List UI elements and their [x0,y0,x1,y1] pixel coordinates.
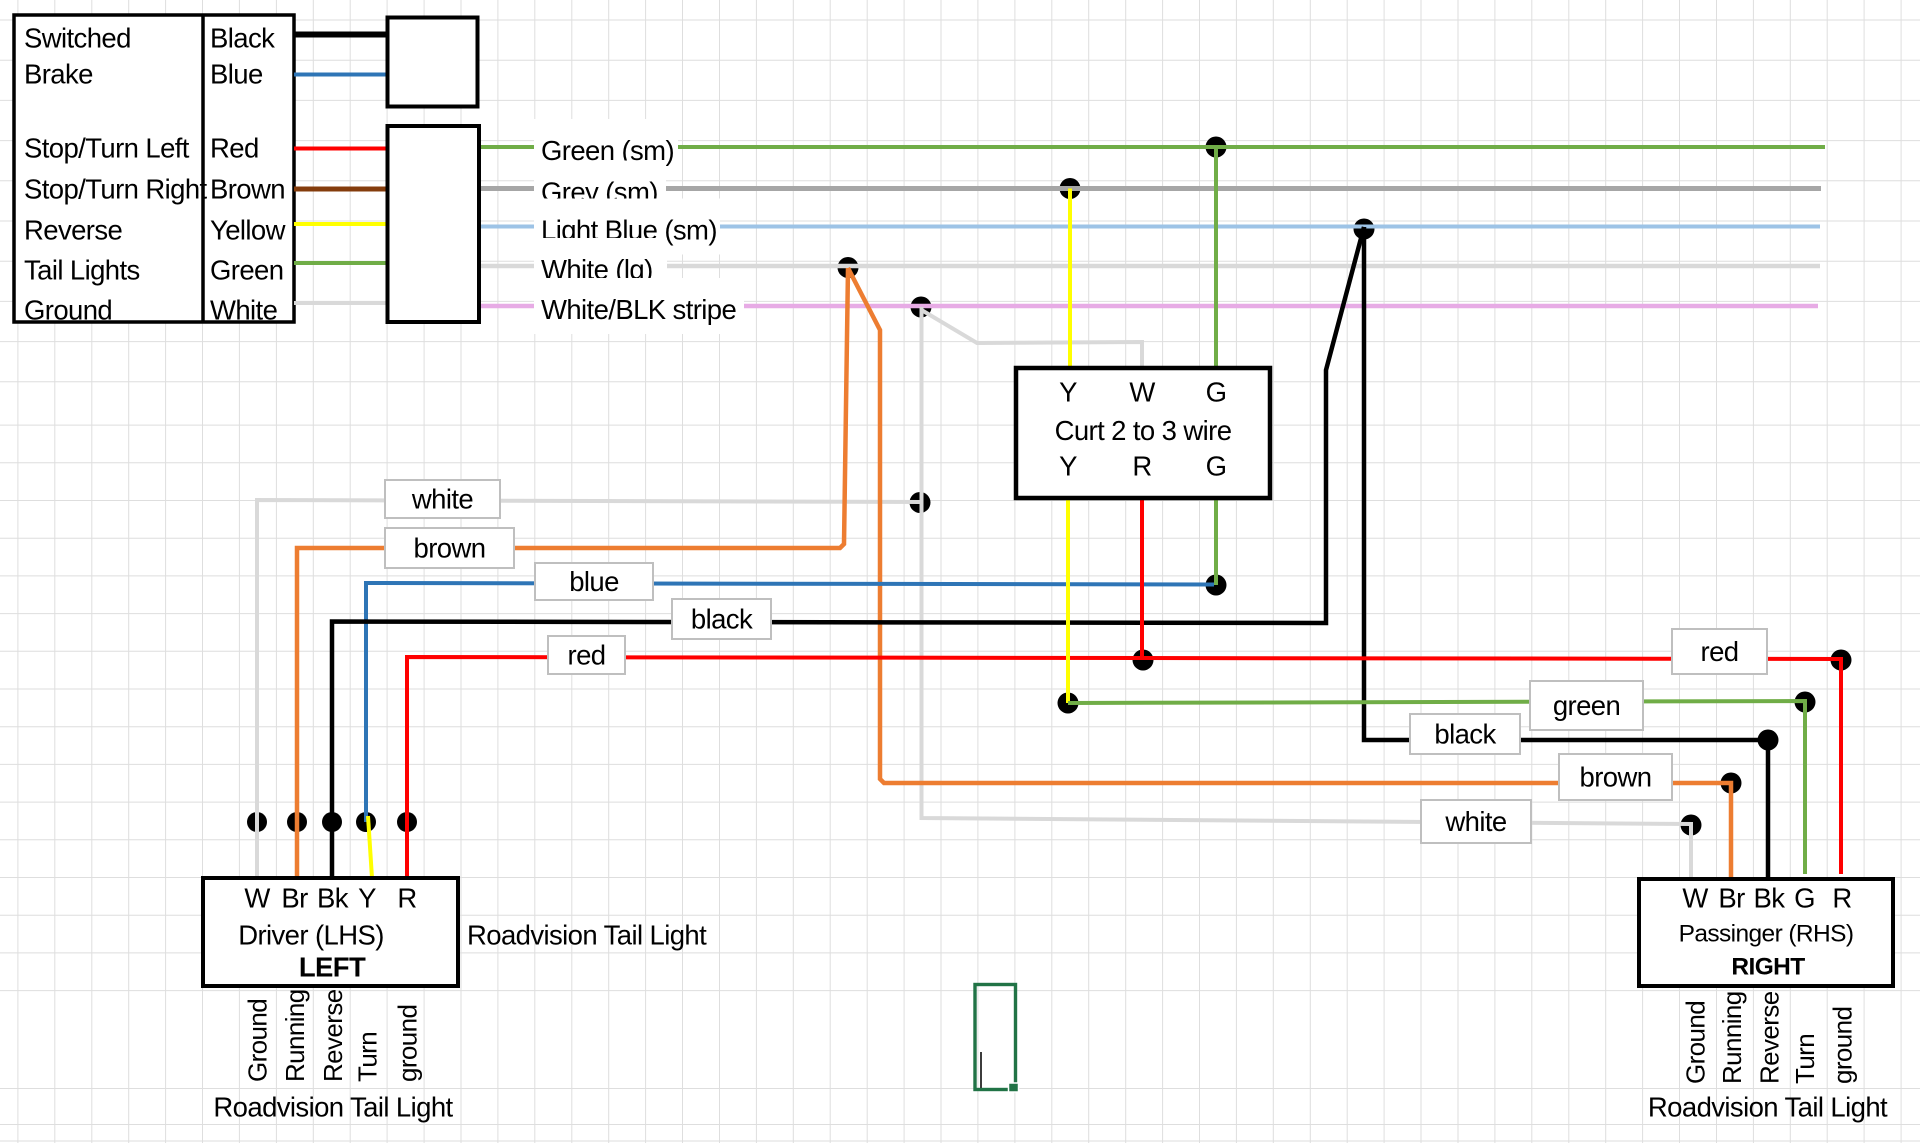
svg-text:blue: blue [569,566,619,597]
svg-text:W: W [1129,377,1155,408]
svg-text:Reverse: Reverse [1755,991,1785,1084]
svg-text:white: white [411,484,474,515]
svg-text:red: red [1701,636,1739,667]
svg-text:Ground: Ground [243,999,273,1082]
svg-text:Tail Lights: Tail Lights [24,255,140,286]
svg-text:Running: Running [280,989,310,1082]
svg-text:Br: Br [281,883,308,914]
svg-text:Green: Green [210,255,283,286]
svg-text:R: R [1832,883,1851,914]
svg-text:Reverse: Reverse [24,215,123,246]
svg-text:R: R [397,883,416,914]
svg-text:Bk: Bk [317,883,349,914]
svg-text:Stop/Turn Right: Stop/Turn Right [24,174,208,205]
svg-text:RIGHT: RIGHT [1731,954,1805,981]
svg-text:black: black [691,604,753,635]
svg-text:ground: ground [393,1005,423,1082]
svg-text:W: W [244,883,270,914]
svg-text:Switched: Switched [24,23,131,54]
svg-text:Running: Running [1717,991,1747,1084]
svg-text:Ground: Ground [24,295,112,326]
svg-text:black: black [1434,719,1496,750]
svg-text:ground: ground [1828,1007,1858,1084]
svg-text:W: W [1682,883,1708,914]
svg-text:Passinger (RHS): Passinger (RHS) [1679,921,1854,948]
svg-text:White: White [210,295,278,326]
svg-text:Roadvision Tail Light: Roadvision Tail Light [1648,1092,1888,1123]
svg-text:Roadvision Tail Light: Roadvision Tail Light [213,1092,453,1123]
svg-text:Brake: Brake [24,59,93,90]
svg-text:Turn: Turn [1790,1034,1820,1084]
svg-text:Reverse: Reverse [318,989,348,1082]
svg-text:Brown: Brown [210,174,285,205]
svg-text:Turn: Turn [353,1032,383,1082]
svg-text:Bk: Bk [1754,883,1786,914]
svg-text:Y: Y [358,883,376,914]
svg-text:green: green [1553,690,1620,721]
svg-text:Roadvision Tail Light: Roadvision Tail Light [467,920,707,951]
svg-text:G: G [1206,451,1227,482]
svg-text:white: white [1444,806,1507,837]
svg-text:G: G [1794,883,1815,914]
svg-text:Y: Y [1059,451,1077,482]
svg-text:Blue: Blue [210,59,263,90]
svg-text:Driver (LHS): Driver (LHS) [238,920,384,951]
svg-text:brown: brown [1580,762,1652,793]
svg-text:brown: brown [414,533,486,564]
svg-text:Ground: Ground [1681,1001,1711,1084]
svg-text:Y: Y [1059,377,1077,408]
svg-text:Stop/Turn Left: Stop/Turn Left [24,133,190,164]
svg-text:G: G [1206,377,1227,408]
svg-text:Black: Black [210,23,275,54]
svg-text:White/BLK stripe: White/BLK stripe [541,294,737,325]
svg-text:Curt 2 to 3 wire: Curt 2 to 3 wire [1055,415,1232,446]
svg-text:Yellow: Yellow [210,215,286,246]
svg-text:Red: Red [210,133,259,164]
svg-text:red: red [568,640,606,671]
svg-text:Br: Br [1718,883,1745,914]
svg-text:R: R [1132,451,1151,482]
svg-text:LEFT: LEFT [299,952,366,983]
